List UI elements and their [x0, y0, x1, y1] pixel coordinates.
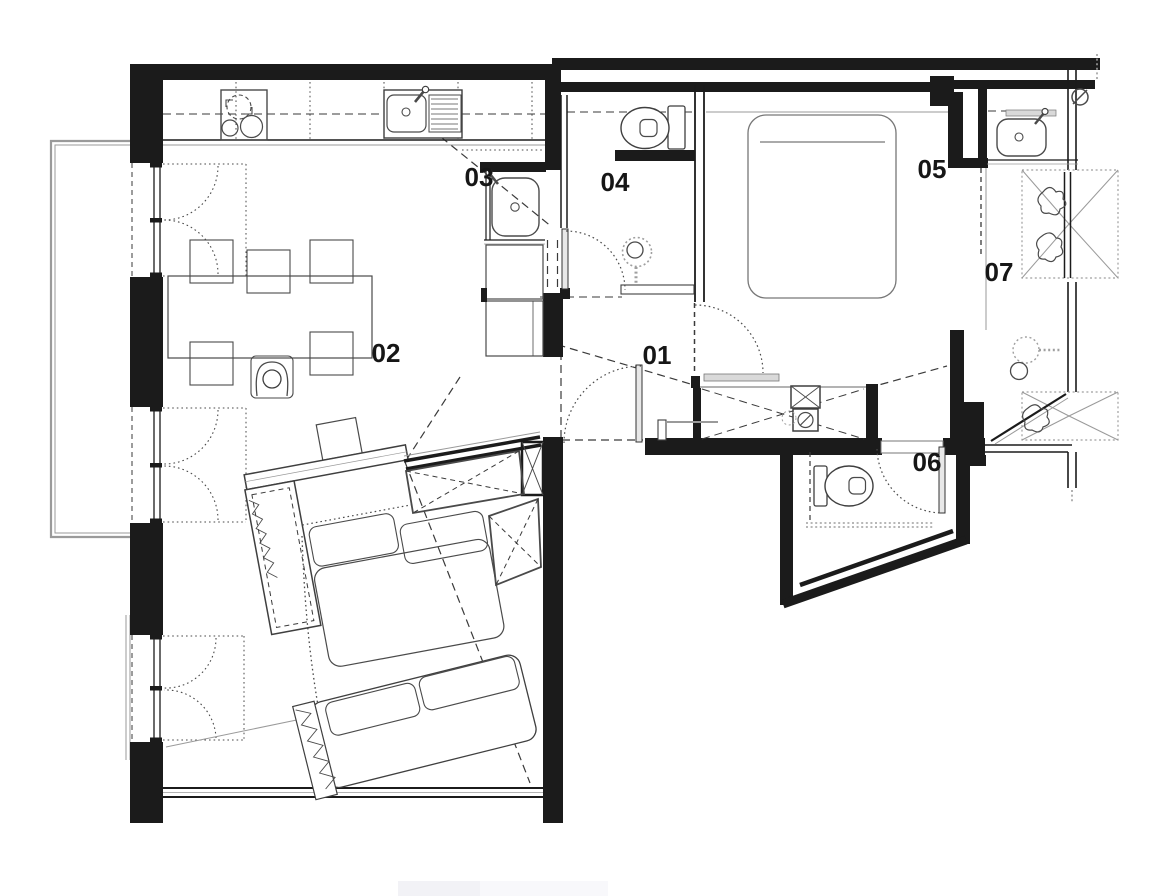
floor-plan-drawing: 01 02 03 04 05 06 07	[0, 0, 1170, 896]
sofa-sectional	[236, 398, 506, 678]
room-label-07: 07	[985, 257, 1014, 287]
bedroom-05	[695, 115, 897, 439]
kitchen	[163, 82, 545, 150]
door-04	[562, 229, 625, 290]
console-lower	[489, 499, 541, 585]
mirrored-closet-upper	[1022, 170, 1118, 278]
door-05	[695, 303, 764, 375]
tv-console	[406, 451, 524, 513]
toilet-icon	[621, 106, 685, 149]
dining-area	[168, 240, 372, 398]
room-label-02: 02	[372, 338, 401, 368]
washbasin-icon	[997, 109, 1056, 157]
duct-shaft-icon	[522, 442, 543, 495]
room-label-04: 04	[601, 167, 630, 197]
wardrobe	[700, 374, 866, 439]
shower-head-icon	[623, 238, 652, 289]
balcony	[51, 141, 130, 760]
kitchen-sink-icon	[384, 86, 462, 138]
cooktop-icon	[221, 90, 267, 140]
valve-icon	[1072, 89, 1088, 105]
mirrored-closet-lower	[991, 392, 1118, 444]
chair	[247, 250, 290, 293]
chair	[190, 342, 233, 385]
toilet-icon	[814, 466, 873, 506]
bottom-artifact-strip	[398, 881, 608, 896]
person-icon	[251, 356, 293, 398]
room-label-03: 03	[465, 162, 494, 192]
french-windows	[132, 163, 246, 742]
sofa	[293, 651, 540, 800]
room-label-06: 06	[913, 447, 942, 477]
washbasin-icon	[486, 170, 539, 237]
living-area	[166, 398, 543, 800]
ceiling-light-icon	[1011, 337, 1063, 380]
door-living	[564, 365, 642, 443]
room-label-05: 05	[918, 154, 947, 184]
floor-plan: 01 02 03 04 05 06 07	[0, 0, 1170, 896]
room-label-01: 01	[643, 340, 672, 370]
dining-table	[168, 276, 372, 358]
washer-dryer-stack-icon	[782, 386, 820, 431]
tv-wall	[404, 432, 543, 585]
bathroom-04	[562, 106, 694, 294]
chair	[310, 332, 353, 375]
double-bed-icon	[748, 115, 896, 298]
room-labels: 01 02 03 04 05 06 07	[372, 154, 1014, 477]
